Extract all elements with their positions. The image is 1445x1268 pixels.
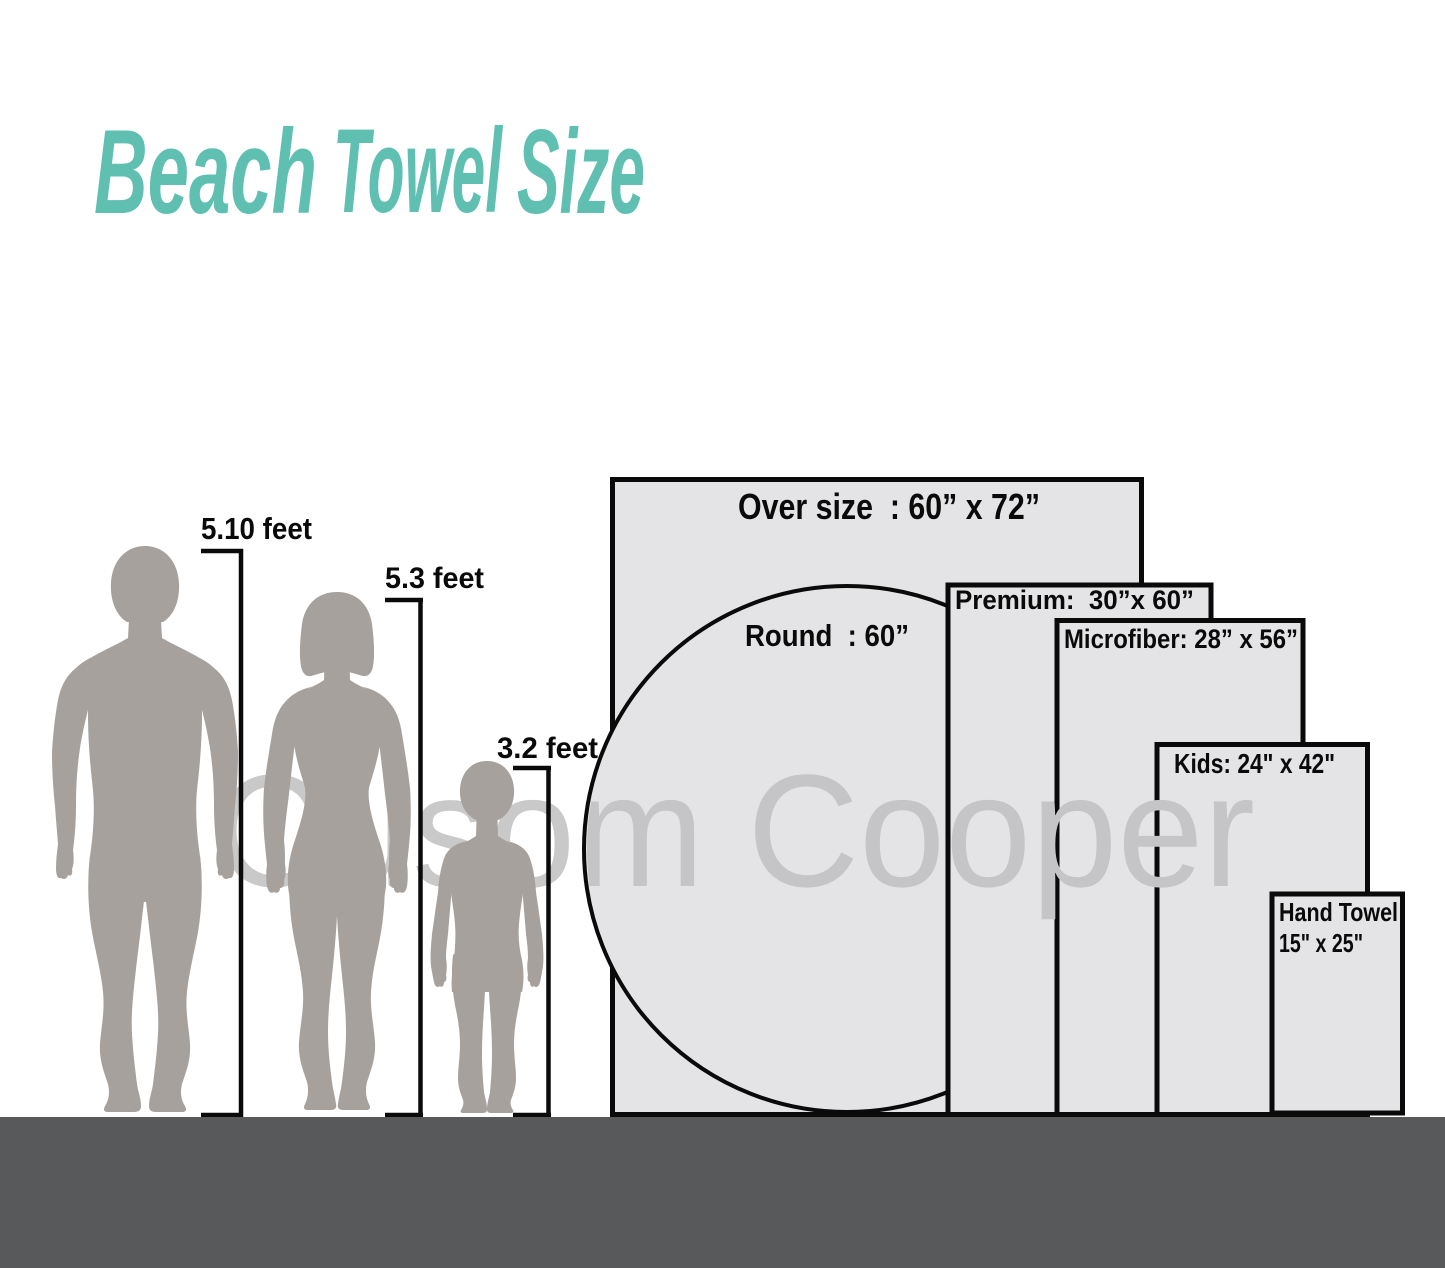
svg-text:5.10 feet: 5.10 feet — [201, 511, 312, 546]
svg-text:Size: Size — [517, 105, 645, 239]
svg-text:Microfiber: 28” x 56”: Microfiber: 28” x 56” — [1064, 624, 1298, 654]
svg-text:Hand Towel: Hand Towel — [1279, 897, 1398, 927]
svg-text:5.3 feet: 5.3 feet — [385, 562, 484, 595]
svg-text:Towel: Towel — [333, 104, 503, 238]
svg-text:Beach: Beach — [94, 105, 317, 239]
svg-text:15" x 25": 15" x 25" — [1279, 928, 1363, 958]
svg-text:Round : 60”: Round : 60” — [745, 618, 909, 653]
svg-text:Over size : 60” x 72”: Over size : 60” x 72” — [738, 486, 1040, 527]
svg-text:Kids: 24" x 42": Kids: 24" x 42" — [1174, 748, 1335, 779]
svg-text:Premium: 30”x 60”: Premium: 30”x 60” — [955, 585, 1194, 615]
svg-text:3.2 feet: 3.2 feet — [497, 732, 598, 765]
